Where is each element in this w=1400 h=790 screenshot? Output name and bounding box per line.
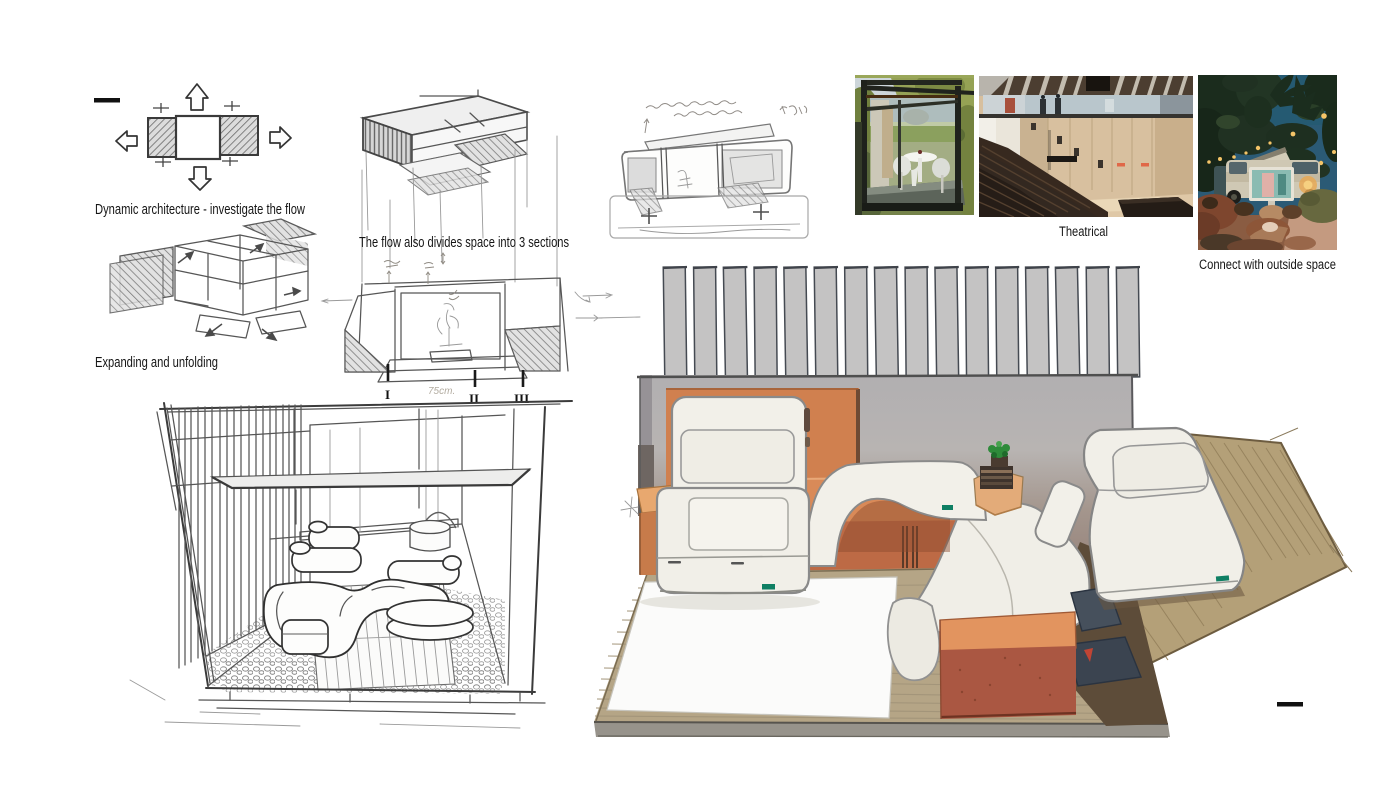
svg-text:Dynamic architecture - investi: Dynamic architecture - investigate the f… (95, 201, 305, 218)
svg-text:III: III (514, 391, 529, 406)
svg-text:Theatrical: Theatrical (1059, 224, 1108, 239)
svg-text:75cm.: 75cm. (428, 386, 455, 397)
svg-text:Expanding and unfolding: Expanding and unfolding (95, 354, 218, 371)
svg-text:Connect with outside space: Connect with outside space (1199, 257, 1336, 272)
svg-text:I: I (385, 387, 390, 402)
svg-text:The flow also divides space in: The flow also divides space into 3 secti… (359, 234, 569, 251)
